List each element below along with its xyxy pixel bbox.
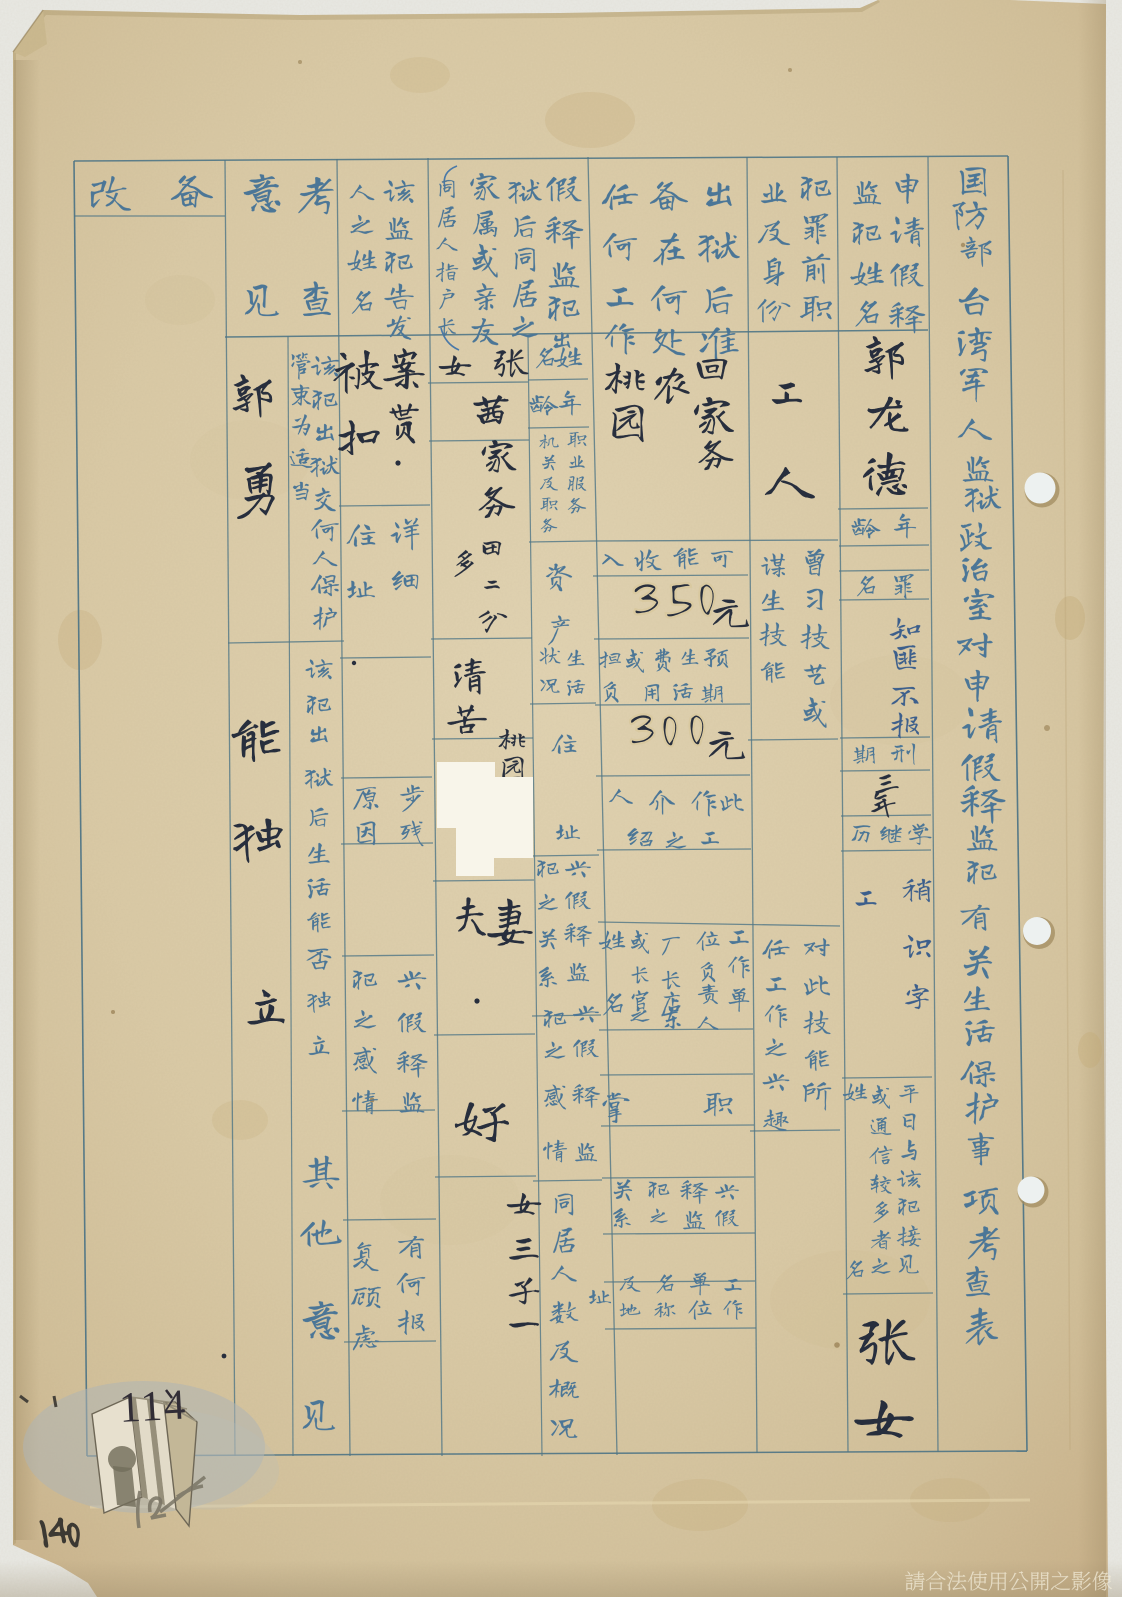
svg-text:114: 114 [118,1382,188,1432]
